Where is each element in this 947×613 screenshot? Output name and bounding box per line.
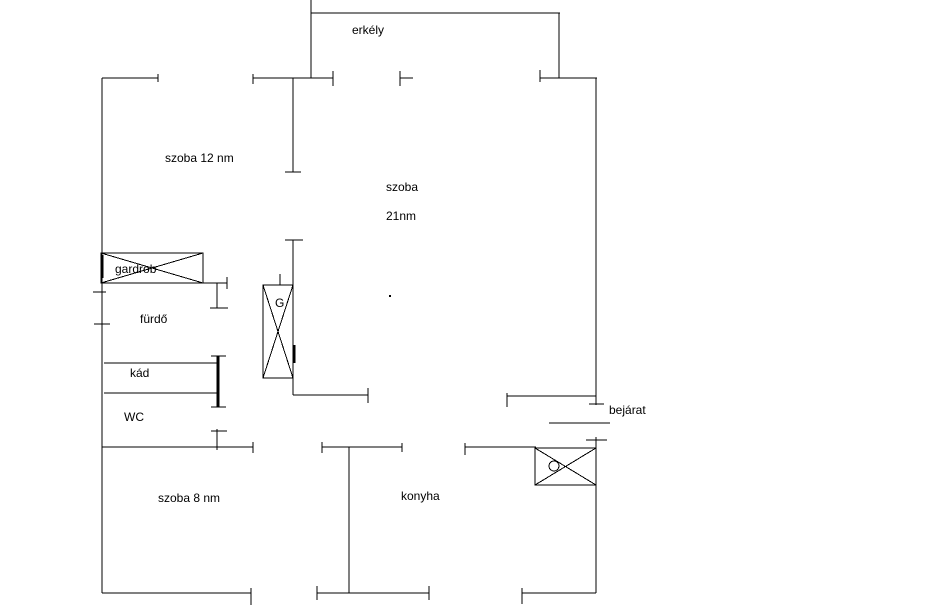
label-room-12sqm: szoba 12 nm xyxy=(165,152,234,165)
label-room-8sqm: szoba 8 nm xyxy=(158,492,220,505)
label-room-21sqm-area: 21nm xyxy=(386,210,416,223)
stray-dot xyxy=(389,295,391,297)
floor-plan: erkély szoba 12 nm szoba 21nm gardrob fü… xyxy=(0,0,947,613)
label-wc: WC xyxy=(124,411,144,424)
label-kitchen: konyha xyxy=(401,490,440,503)
label-room-21sqm: szoba xyxy=(386,181,418,194)
label-boiler-g: G xyxy=(275,297,284,310)
label-wardrobe: gardrob xyxy=(115,263,156,276)
entrance-cabinet-knob xyxy=(549,461,559,471)
label-balcony: erkély xyxy=(352,24,384,37)
label-bathroom: fürdő xyxy=(140,313,167,326)
label-bathtub: kád xyxy=(130,367,149,380)
label-entrance: bejárat xyxy=(609,404,646,417)
floor-plan-drawing xyxy=(0,0,947,613)
